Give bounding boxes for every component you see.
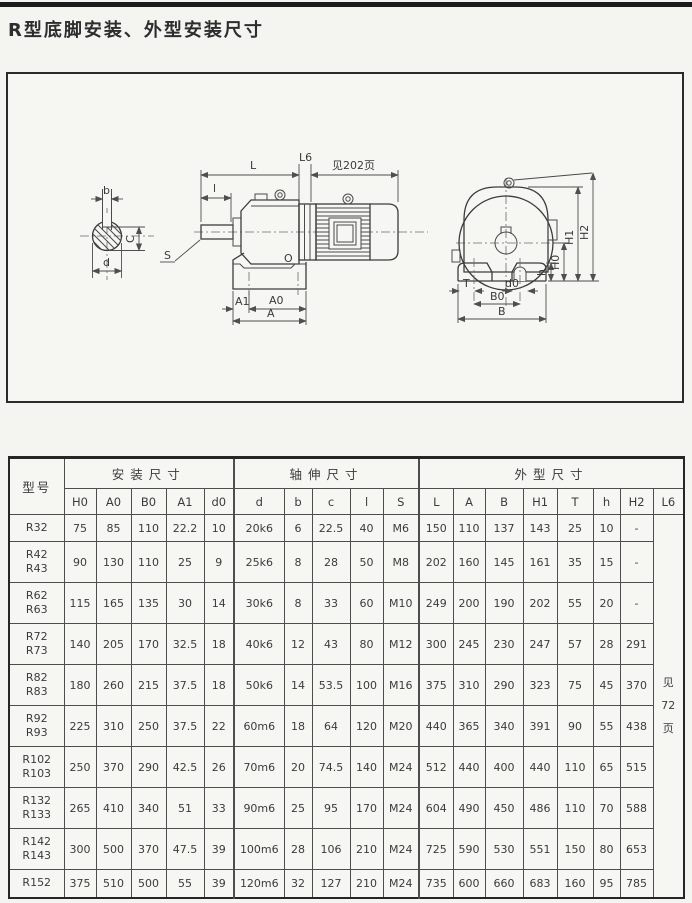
model-cell: R102 R103: [9, 747, 64, 788]
table-row: R42 R439013011025925k682850M820216014516…: [9, 542, 684, 583]
cell-l: 210: [350, 870, 383, 898]
header-A: A: [453, 489, 485, 515]
cell-H1: 440: [523, 747, 557, 788]
cell-B: 145: [485, 542, 523, 583]
header-c: c: [312, 489, 350, 515]
cell-T: 150: [557, 829, 593, 870]
cell-d0: 18: [204, 665, 234, 706]
cell-d0: 33: [204, 788, 234, 829]
cell-d0: 10: [204, 515, 234, 542]
cell-T: 90: [557, 706, 593, 747]
cell-B0: 135: [131, 583, 166, 624]
cell-S: M24: [383, 747, 419, 788]
model-cell: R152: [9, 870, 64, 898]
cell-d: 60m6: [234, 706, 284, 747]
cell-B: 530: [485, 829, 523, 870]
cell-A: 200: [453, 583, 485, 624]
cell-A1: 51: [166, 788, 204, 829]
cell-L: 735: [419, 870, 453, 898]
cell-l: 50: [350, 542, 383, 583]
cell-A: 490: [453, 788, 485, 829]
cell-H0: 300: [64, 829, 96, 870]
cell-b: 25: [284, 788, 312, 829]
cell-b: 6: [284, 515, 312, 542]
cell-h: 80: [593, 829, 620, 870]
header-group-outline: 外型尺寸: [419, 458, 684, 489]
cell-H2: 588: [620, 788, 653, 829]
cell-c: 53.5: [312, 665, 350, 706]
cell-A1: 42.5: [166, 747, 204, 788]
cell-h: 28: [593, 624, 620, 665]
table-row: R142 R14330050037047.539100m628106210M24…: [9, 829, 684, 870]
table-row: R62 R63115165135301430k683360M1024920019…: [9, 583, 684, 624]
cell-l: 60: [350, 583, 383, 624]
cell-H1: 161: [523, 542, 557, 583]
cell-d: 50k6: [234, 665, 284, 706]
cell-b: 20: [284, 747, 312, 788]
cell-B0: 110: [131, 542, 166, 583]
cell-B0: 340: [131, 788, 166, 829]
cell-L: 725: [419, 829, 453, 870]
cell-H1: 247: [523, 624, 557, 665]
cell-H0: 265: [64, 788, 96, 829]
cell-d: 120m6: [234, 870, 284, 898]
cell-A0: 510: [96, 870, 131, 898]
cell-H1: 486: [523, 788, 557, 829]
cell-S: M24: [383, 788, 419, 829]
cell-A1: 37.5: [166, 665, 204, 706]
cell-A: 590: [453, 829, 485, 870]
header-B: B: [485, 489, 523, 515]
cell-A1: 30: [166, 583, 204, 624]
cell-A1: 55: [166, 870, 204, 898]
cell-c: 106: [312, 829, 350, 870]
cell-B: 450: [485, 788, 523, 829]
model-cell: R32: [9, 515, 64, 542]
cell-T: 110: [557, 788, 593, 829]
table-row: R82 R8318026021537.51850k61453.5100M1637…: [9, 665, 684, 706]
cell-L: 375: [419, 665, 453, 706]
cell-B: 400: [485, 747, 523, 788]
cell-d0: 39: [204, 870, 234, 898]
label-dim-H1: H1: [563, 230, 576, 245]
cell-H2: 438: [620, 706, 653, 747]
cell-A0: 205: [96, 624, 131, 665]
cell-A: 310: [453, 665, 485, 706]
cell-A1: 47.5: [166, 829, 204, 870]
technical-drawing: b C d S: [8, 74, 678, 397]
cell-H0: 250: [64, 747, 96, 788]
cell-S: M12: [383, 624, 419, 665]
table-row: R132 R133265410340513390m62595170M246044…: [9, 788, 684, 829]
header-H2: H2: [620, 489, 653, 515]
side-view: O L L6 见202页 l A1: [194, 151, 428, 325]
cell-d: 70m6: [234, 747, 284, 788]
cell-H0: 90: [64, 542, 96, 583]
cell-B0: 290: [131, 747, 166, 788]
cell-H2: 653: [620, 829, 653, 870]
cell-l: 80: [350, 624, 383, 665]
cell-B: 340: [485, 706, 523, 747]
cell-H2: -: [620, 515, 653, 542]
cell-B0: 170: [131, 624, 166, 665]
cell-d0: 18: [204, 624, 234, 665]
cell-A0: 130: [96, 542, 131, 583]
cell-T: 160: [557, 870, 593, 898]
cell-A1: 32.5: [166, 624, 204, 665]
cell-A: 245: [453, 624, 485, 665]
cell-h: 70: [593, 788, 620, 829]
cell-l: 120: [350, 706, 383, 747]
label-dim-H2: H2: [578, 225, 591, 240]
dimension-table: 型号 安装尺寸 轴伸尺寸 外型尺寸 H0 A0 B0 A1 d0 d b c l…: [8, 456, 685, 899]
cell-B: 137: [485, 515, 523, 542]
label-dim-d0: d0: [505, 277, 519, 290]
cell-h: 20: [593, 583, 620, 624]
cell-A0: 260: [96, 665, 131, 706]
header-H0: H0: [64, 489, 96, 515]
cell-h: 10: [593, 515, 620, 542]
cell-d: 30k6: [234, 583, 284, 624]
header-h: h: [593, 489, 620, 515]
label-len-l: l: [213, 182, 216, 195]
cell-A0: 310: [96, 706, 131, 747]
cell-c: 43: [312, 624, 350, 665]
label-shaft-dia-d: d: [103, 256, 110, 269]
cell-L: 300: [419, 624, 453, 665]
cell-l: 40: [350, 515, 383, 542]
cell-S: M8: [383, 542, 419, 583]
cell-H1: 683: [523, 870, 557, 898]
cell-H1: 143: [523, 515, 557, 542]
cell-A0: 370: [96, 747, 131, 788]
cell-b: 12: [284, 624, 312, 665]
model-cell: R62 R63: [9, 583, 64, 624]
cell-d0: 9: [204, 542, 234, 583]
header-model: 型号: [9, 458, 64, 515]
cell-A1: 25: [166, 542, 204, 583]
cell-H2: -: [620, 583, 653, 624]
cell-L: 440: [419, 706, 453, 747]
table-row: R92 R9322531025037.52260m61864120M204403…: [9, 706, 684, 747]
header-d: d: [234, 489, 284, 515]
label-key-width-b: b: [103, 184, 110, 197]
cell-B: 230: [485, 624, 523, 665]
cell-B0: 250: [131, 706, 166, 747]
cell-l: 170: [350, 788, 383, 829]
top-rule: [0, 2, 692, 7]
cell-B0: 370: [131, 829, 166, 870]
cell-T: 110: [557, 747, 593, 788]
label-see-page-202: 见202页: [332, 159, 375, 172]
table-row: R72 R7314020517032.51840k6124380M1230024…: [9, 624, 684, 665]
cell-H1: 323: [523, 665, 557, 706]
l6-see-page-note: 见 72 页: [653, 515, 684, 898]
cell-T: 55: [557, 583, 593, 624]
cell-H1: 391: [523, 706, 557, 747]
cell-b: 28: [284, 829, 312, 870]
header-L: L: [419, 489, 453, 515]
table-row: R1523755105005539120m632127210M247356006…: [9, 870, 684, 898]
cell-l: 140: [350, 747, 383, 788]
cell-H2: 515: [620, 747, 653, 788]
cell-b: 32: [284, 870, 312, 898]
cell-H2: 785: [620, 870, 653, 898]
cell-B0: 215: [131, 665, 166, 706]
cell-d: 40k6: [234, 624, 284, 665]
cell-A1: 22.2: [166, 515, 204, 542]
cell-A: 600: [453, 870, 485, 898]
cell-L: 512: [419, 747, 453, 788]
cell-S: M10: [383, 583, 419, 624]
header-l: l: [350, 489, 383, 515]
header-d0: d0: [204, 489, 234, 515]
cell-l: 100: [350, 665, 383, 706]
cell-h: 15: [593, 542, 620, 583]
cell-T: 57: [557, 624, 593, 665]
cell-h: 95: [593, 870, 620, 898]
label-dim-B0: B0: [490, 290, 505, 303]
cell-c: 33: [312, 583, 350, 624]
model-cell: R132 R133: [9, 788, 64, 829]
cell-L: 150: [419, 515, 453, 542]
cell-A0: 500: [96, 829, 131, 870]
cell-h: 55: [593, 706, 620, 747]
label-dim-T: T: [462, 277, 470, 290]
cell-h: 65: [593, 747, 620, 788]
cell-c: 28: [312, 542, 350, 583]
header-group-shaft: 轴伸尺寸: [234, 458, 419, 489]
cell-T: 75: [557, 665, 593, 706]
drawing-panel: b C d S: [6, 72, 684, 403]
table-body: R32758511022.21020k6622.540M615011013714…: [9, 515, 684, 898]
header-A0: A0: [96, 489, 131, 515]
cell-A: 160: [453, 542, 485, 583]
cell-d: 90m6: [234, 788, 284, 829]
cell-A: 365: [453, 706, 485, 747]
cell-B: 290: [485, 665, 523, 706]
cell-B0: 500: [131, 870, 166, 898]
cell-c: 64: [312, 706, 350, 747]
cell-L: 249: [419, 583, 453, 624]
cell-S: M16: [383, 665, 419, 706]
header-b: b: [284, 489, 312, 515]
cell-A0: 410: [96, 788, 131, 829]
table-row: R32758511022.21020k6622.540M615011013714…: [9, 515, 684, 542]
cell-d: 25k6: [234, 542, 284, 583]
cell-c: 127: [312, 870, 350, 898]
label-mark-O: O: [284, 252, 293, 265]
cell-b: 14: [284, 665, 312, 706]
cell-H0: 225: [64, 706, 96, 747]
cell-S: M6: [383, 515, 419, 542]
label-dim-h: h: [535, 269, 548, 276]
cell-l: 210: [350, 829, 383, 870]
cell-d0: 22: [204, 706, 234, 747]
cell-H0: 115: [64, 583, 96, 624]
label-dim-A: A: [267, 307, 275, 320]
cell-d: 20k6: [234, 515, 284, 542]
cell-S: M20: [383, 706, 419, 747]
header-L6: L6: [653, 489, 684, 515]
cell-c: 74.5: [312, 747, 350, 788]
model-cell: R72 R73: [9, 624, 64, 665]
model-cell: R82 R83: [9, 665, 64, 706]
header-T: T: [557, 489, 593, 515]
header-H1: H1: [523, 489, 557, 515]
cell-d: 100m6: [234, 829, 284, 870]
label-thread-S: S: [164, 249, 171, 262]
header-S: S: [383, 489, 419, 515]
cell-H1: 551: [523, 829, 557, 870]
cell-d0: 39: [204, 829, 234, 870]
cell-d0: 14: [204, 583, 234, 624]
label-len-L6: L6: [299, 151, 312, 164]
cell-B: 660: [485, 870, 523, 898]
label-key-height-C: C: [124, 235, 137, 243]
header-A1: A1: [166, 489, 204, 515]
cell-H0: 375: [64, 870, 96, 898]
cell-d0: 26: [204, 747, 234, 788]
header-group-install: 安装尺寸: [64, 458, 234, 489]
cell-c: 22.5: [312, 515, 350, 542]
cell-c: 95: [312, 788, 350, 829]
cell-B0: 110: [131, 515, 166, 542]
label-dim-H0: H0: [549, 255, 562, 270]
cell-b: 18: [284, 706, 312, 747]
label-dim-A1: A1: [235, 295, 250, 308]
model-cell: R92 R93: [9, 706, 64, 747]
cell-L: 202: [419, 542, 453, 583]
cell-A0: 165: [96, 583, 131, 624]
cell-B: 190: [485, 583, 523, 624]
cell-A: 440: [453, 747, 485, 788]
cell-H2: 291: [620, 624, 653, 665]
cell-H0: 75: [64, 515, 96, 542]
cell-b: 8: [284, 583, 312, 624]
model-cell: R42 R43: [9, 542, 64, 583]
page-title: R型底脚安装、外型安装尺寸: [8, 16, 264, 42]
label-dim-B: B: [498, 305, 506, 318]
shaft-section-detail: b C d S: [66, 184, 200, 280]
cell-H2: 370: [620, 665, 653, 706]
cell-T: 25: [557, 515, 593, 542]
cell-H1: 202: [523, 583, 557, 624]
cell-A1: 37.5: [166, 706, 204, 747]
cell-L: 604: [419, 788, 453, 829]
cell-A: 110: [453, 515, 485, 542]
table-row: R102 R10325037029042.52670m62074.5140M24…: [9, 747, 684, 788]
cell-H0: 140: [64, 624, 96, 665]
label-len-L: L: [250, 159, 257, 172]
cell-H0: 180: [64, 665, 96, 706]
cell-S: M24: [383, 870, 419, 898]
cell-S: M24: [383, 829, 419, 870]
header-B0: B0: [131, 489, 166, 515]
cell-h: 45: [593, 665, 620, 706]
cell-H2: -: [620, 542, 653, 583]
model-cell: R142 R143: [9, 829, 64, 870]
label-dim-A0: A0: [269, 294, 284, 307]
end-view: h H0 H1 H2 T d0 B0: [449, 173, 599, 323]
cell-b: 8: [284, 542, 312, 583]
cell-A0: 85: [96, 515, 131, 542]
cell-T: 35: [557, 542, 593, 583]
